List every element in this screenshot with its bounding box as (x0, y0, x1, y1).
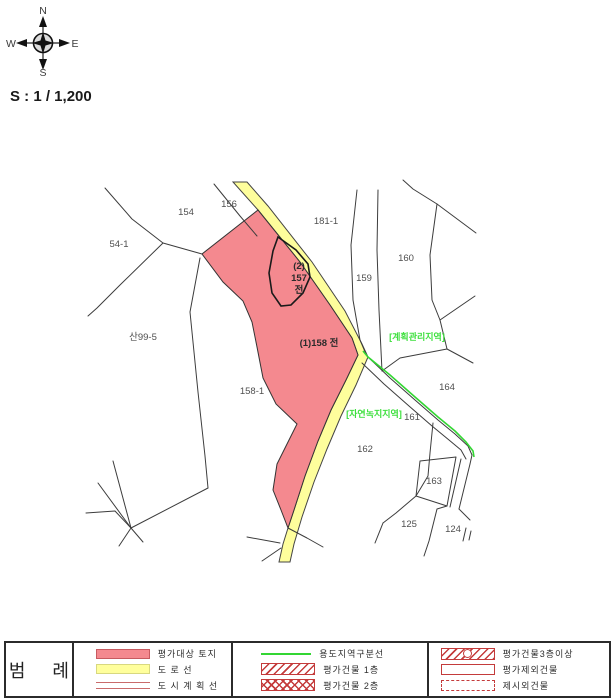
boundary-line (447, 349, 473, 363)
boundary-line (430, 204, 447, 349)
boundary-line (437, 204, 476, 233)
compass-label-north: N (39, 5, 47, 17)
swatch-unlisted-building (441, 680, 495, 691)
legend-label: 도 시 계 획 선 (158, 679, 218, 692)
parcel-label-159: 159 (356, 273, 372, 284)
boundary-line (469, 531, 471, 540)
cadastral-map-sheet: N S W E S : 1 / 1,200 (0, 0, 614, 700)
boundary-line (262, 548, 281, 561)
boundary-line (88, 243, 163, 316)
legend-item-building-1f: 평가건물 1층 (261, 662, 426, 677)
boundary-line (119, 528, 131, 546)
legend-item-city-plan-line: 도 시 계 획 선 (96, 678, 232, 693)
boundary-line (470, 455, 472, 464)
boundary-line (131, 528, 143, 542)
legend-title: 범 례 (6, 643, 74, 696)
boundary-line (424, 506, 447, 556)
compass-label-west: W (6, 38, 16, 50)
parcel-label-158: (1)158 전 (300, 337, 339, 349)
boundary-line (459, 509, 470, 520)
legend-label: 제시외건물 (503, 679, 549, 692)
boundary-line (98, 483, 131, 528)
boundary-line (247, 537, 280, 543)
boundary-line (403, 180, 437, 204)
boundary-line (131, 488, 208, 528)
legend-label: 도 로 선 (158, 663, 193, 676)
boundary-line (190, 258, 208, 488)
compass-arrow-north-icon (39, 16, 47, 27)
parcel-label-154: 154 (178, 207, 194, 218)
swatch-city-plan-line (96, 682, 150, 689)
legend-item-zone-division-line: 용도지역구분선 (261, 646, 426, 661)
parcel-label-124: 124 (445, 524, 461, 535)
parcel-label-164: 164 (439, 382, 455, 393)
legend-label: 평가건물 2층 (323, 679, 379, 692)
parcel-label-157-line1: (2) (293, 261, 305, 272)
compass-arrow-east-icon (59, 39, 70, 47)
legend: 범 례 평가대상 토지 도 로 선 도 시 계 획 선 용도지역구분선 (4, 641, 611, 698)
parcel-label-158-1: 158-1 (240, 386, 264, 397)
legend-label: 평가대상 토지 (158, 647, 217, 660)
map-scale-label: S : 1 / 1,200 (10, 88, 92, 105)
parcel-label-san99-5: 산99-5 (129, 332, 157, 343)
boundary-line (459, 464, 470, 509)
zone-label-natural-green: [자연녹지지역] (346, 408, 402, 419)
swatch-target-parcel (96, 649, 150, 659)
compass-label-south: S (39, 67, 46, 79)
parcel-label-157-line3: 전 (295, 284, 304, 296)
legend-item-building-3f-plus: 평가건물3층이상 (441, 646, 609, 661)
compass-arrow-west-icon (16, 39, 27, 47)
swatch-building-3f-plus (441, 648, 495, 660)
legend-item-excluded-building: 평가제외건물 (441, 662, 609, 677)
legend-label: 평가건물 1층 (323, 663, 379, 676)
legend-label: 용도지역구분선 (319, 647, 384, 660)
swatch-building-2f (261, 679, 315, 691)
legend-label: 평가건물3층이상 (503, 647, 574, 660)
zone-label-plan-management: [계획관리지역] (389, 331, 445, 342)
parcel-label-162: 162 (357, 444, 373, 455)
parcel-label-181-1: 181-1 (314, 216, 338, 227)
swatch-zone-division-line (261, 653, 311, 655)
legend-item-target-parcel: 평가대상 토지 (96, 646, 232, 661)
swatch-circle-mark (463, 649, 472, 658)
boundary-line (463, 528, 466, 541)
legend-item-road-line: 도 로 선 (96, 662, 232, 677)
swatch-excluded-building (441, 664, 495, 675)
compass-label-east: E (71, 38, 78, 50)
target-parcel-158 (202, 210, 358, 528)
parcel-label-125: 125 (401, 519, 417, 530)
boundary-line (375, 523, 383, 543)
parcel-label-163: 163 (426, 476, 442, 487)
parcel-label-157-line2: 157 (291, 273, 307, 284)
zone-division-line (363, 351, 474, 457)
path-parcel-161-edge (368, 357, 472, 455)
legend-column-2: 용도지역구분선 평가건물 1층 평가건물 2층 (233, 643, 428, 696)
parcel-label-161: 161 (404, 412, 420, 423)
boundary-line (377, 190, 382, 371)
compass-star (32, 32, 54, 54)
parcel-label-54-1: 54-1 (109, 239, 128, 250)
compass-rose: N S W E (6, 5, 78, 79)
boundary-line (382, 349, 447, 371)
legend-item-building-2f: 평가건물 2층 (261, 678, 426, 693)
legend-column-1: 평가대상 토지 도 로 선 도 시 계 획 선 (74, 643, 234, 696)
cadastral-map: N S W E S : 1 / 1,200 (0, 0, 614, 632)
swatch-road-line (96, 664, 150, 674)
legend-label: 평가제외건물 (503, 663, 559, 676)
legend-item-unlisted-building: 제시외건물 (441, 678, 609, 693)
swatch-building-1f (261, 663, 315, 675)
parcel-label-156: 156 (221, 199, 237, 210)
boundary-line (440, 296, 475, 320)
parcel-label-160: 160 (398, 253, 414, 264)
legend-column-3: 평가건물3층이상 평가제외건물 제시외건물 (429, 643, 609, 696)
